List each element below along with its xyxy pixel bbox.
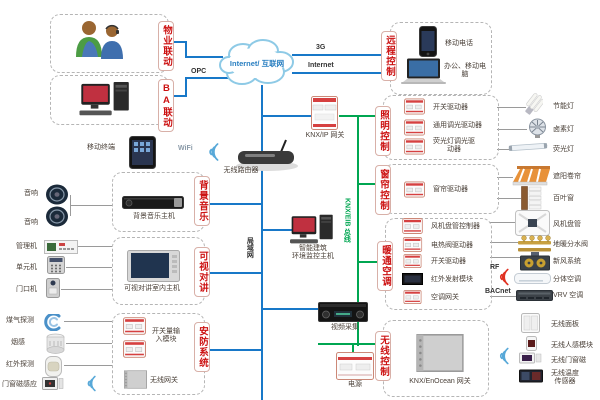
speaker-icon (45, 206, 69, 227)
wifi-waves-icon (204, 142, 220, 162)
door-station-icon (46, 278, 60, 298)
unit-station-label: 单元机 (16, 264, 37, 272)
smoke-detector-label: 烟感 (11, 339, 25, 347)
hvac-control-tag: 暖通空调 (377, 241, 393, 291)
music-host-icon (122, 194, 184, 211)
door-magnet-icon (42, 376, 64, 391)
opc-label: OPC (191, 68, 206, 76)
security-connector (64, 365, 112, 366)
gas-detector-icon (43, 314, 63, 331)
manifold-label: 地暖分水阀 (553, 241, 588, 249)
knx-ip-gateway-icon (311, 96, 338, 130)
knx-bus-label: KNX/EIB 总线 (342, 198, 350, 242)
property-staff-icon (72, 17, 128, 65)
ac-gateway-label: 空调网关 (431, 294, 459, 302)
security-connector (66, 343, 112, 344)
ba-link-line (185, 78, 187, 97)
security-connector (64, 321, 112, 322)
hvac-connector (490, 257, 521, 258)
video-capture-device-icon (318, 302, 368, 322)
management-station-icon (44, 240, 78, 254)
lan-branch-intercom (203, 272, 262, 274)
curtain-connector (497, 198, 521, 199)
awning-label: 遮阳卷帘 (553, 173, 581, 181)
monitor-host-computer-icon (290, 214, 336, 248)
split-ac-icon (514, 273, 551, 285)
pir-detector-label: 红外探测 (6, 361, 34, 369)
intercom-indoor-screen-icon (127, 250, 180, 282)
background-music-tag: 背景音乐 (194, 176, 210, 226)
wireless-gateway-label: 无线网关 (150, 377, 178, 385)
venetian-blinds-icon (521, 186, 542, 210)
lan-branch-knxip (263, 115, 312, 117)
music-host-label: 背景音乐主机 (125, 213, 183, 221)
door-station-label: 门口机 (16, 286, 37, 294)
switch-driver-label: 开关驱动器 (431, 258, 466, 266)
dimmer-driver-label: 通用调光驱动器 (433, 122, 482, 130)
valve-driver-label: 电热阀驱动器 (431, 242, 473, 250)
laptop-icon (400, 58, 447, 85)
fan-coil-controller-label: 风机盘管控制器 (431, 223, 480, 231)
intercom-connector (66, 267, 112, 268)
wireless-gateway-icon (124, 370, 147, 389)
unit-keypad-icon (47, 256, 65, 274)
cfl-lamp-icon (524, 93, 543, 117)
internet-label: Internet (308, 62, 334, 70)
monitor-host-label-line2: 环境监控主机 (288, 253, 338, 261)
din-module-icon (404, 119, 425, 136)
rf-label: RF (490, 264, 499, 272)
fan-coil-label: 风机盘管 (553, 221, 581, 229)
lighting-control-tag: 照明控制 (375, 106, 391, 156)
smartphone-icon (419, 26, 437, 57)
wireless-pir-label: 无线人感模块 (551, 342, 593, 350)
speaker-label: 音响 (24, 190, 38, 198)
pir-detector-icon (45, 356, 62, 377)
power-supply-icon (336, 352, 374, 380)
management-station-label: 管理机 (16, 243, 37, 251)
speaker-icon (45, 184, 69, 205)
din-module-icon (402, 237, 423, 252)
lamp-connector (497, 129, 527, 130)
heating-manifold-icon (516, 234, 553, 254)
speaker-connector (71, 205, 112, 206)
smoke-detector-icon (46, 333, 65, 355)
security-system-tag: 安防系统 (194, 322, 210, 372)
curtain-control-tag: 窗帘控制 (375, 165, 391, 215)
fresh-air-label: 新风系统 (553, 258, 581, 266)
office-laptop-label: 办公、移动电脑 (444, 63, 486, 80)
awning-icon (511, 165, 552, 186)
power-label: 电源 (343, 381, 367, 389)
fluorescent-tube-icon (508, 142, 548, 152)
din-module-icon (404, 98, 425, 115)
curtain-driver-label: 窗帘驱动器 (433, 186, 468, 194)
din-module-icon (404, 138, 425, 155)
fresh-air-unit-icon (520, 252, 550, 271)
speaker-label: 音响 (24, 219, 38, 227)
tablet-icon (129, 136, 156, 169)
split-ac-label: 分体空调 (553, 276, 581, 284)
vrv-ac-label: VRV 空调 (553, 292, 583, 300)
wireless-panel-icon (521, 313, 540, 333)
halogen-lamp-icon (527, 118, 548, 138)
wireless-door-magnet-label: 无线门窗磁 (551, 357, 586, 365)
ir-transmitter-icon (402, 273, 423, 285)
ir-transmitter-label: 红外发射模块 (431, 276, 473, 284)
door-magnet-label: 门窗磁感应 (2, 381, 37, 389)
ba-linkage-tag: BA联动 (158, 79, 174, 132)
knx-ip-gateway-label: KNX/IP 网关 (297, 132, 353, 140)
halogen-lamp-label: 卤素灯 (553, 126, 574, 134)
din-module-icon (402, 290, 423, 304)
lan-branch-music (203, 203, 262, 205)
knx-branch-wireless (318, 343, 377, 345)
din-module-icon (123, 316, 146, 336)
wireless-pir-icon (526, 336, 537, 351)
enocean-gateway-icon (416, 334, 464, 372)
lamp-connector (497, 107, 526, 108)
internet-link-line (292, 72, 384, 74)
cfl-lamp-label: 节能灯 (553, 103, 574, 111)
mobile-terminal-label: 移动终端 (87, 144, 115, 152)
wireless-control-tag: 无线控制 (375, 331, 391, 381)
mobile-phone-label: 移动电话 (445, 40, 473, 48)
video-intercom-tag: 可视对讲 (194, 247, 210, 297)
intercom-connector (61, 289, 112, 290)
hvac-connector (490, 222, 517, 223)
smart-building-system-diagram: Internet/ 互联网 (0, 0, 600, 400)
gas-detector-label: 煤气探测 (6, 317, 34, 325)
knx-branch-hvac (359, 261, 377, 263)
intercom-host-label: 可视对讲室内主机 (119, 285, 185, 293)
wireless-temp-sensor-label: 无线温度传感器 (549, 370, 581, 387)
fluorescent-driver-label: 荧光灯调光驱动器 (433, 138, 475, 155)
din-module-icon (402, 218, 423, 234)
wireless-door-magnet-icon (519, 351, 542, 365)
wireless-panel-label: 无线面板 (551, 321, 579, 329)
knx-branch-lighting (339, 115, 379, 117)
wireless-temp-sensor-icon (519, 369, 543, 383)
fluorescent-lamp-label: 荧光灯 (553, 146, 574, 154)
din-module-icon (402, 254, 423, 268)
lan-trunk-line (261, 85, 263, 400)
ba-computer-icon (78, 82, 134, 120)
3g-link-line (292, 54, 384, 56)
din-module-icon (404, 181, 425, 198)
fan-coil-cassette-icon (515, 210, 550, 236)
video-capture-label: 视频采集 (331, 324, 359, 332)
wifi-label: WiFi (178, 145, 193, 153)
property-linkage-tag: 物业联动 (158, 21, 174, 71)
router-label: 无线路由器 (217, 167, 265, 175)
internet-cloud-label: Internet/ 互联网 (224, 58, 290, 69)
wifi-waves-icon (83, 375, 97, 392)
vrv-ac-icon (516, 288, 553, 302)
switch-driver-label: 开关驱动器 (433, 104, 468, 112)
din-module-icon (123, 339, 146, 359)
lan-label: 局域网 (245, 237, 253, 258)
3g-label: 3G (316, 44, 325, 52)
hvac-connector (490, 242, 519, 243)
lan-branch-video (263, 308, 321, 310)
blinds-label: 百叶窗 (553, 195, 574, 203)
remote-control-tag: 远程控制 (381, 31, 397, 81)
enocean-gateway-label: KNX/EnOcean 网关 (404, 378, 476, 386)
bacnet-label: BACnet (485, 288, 511, 296)
lan-branch-security (203, 349, 262, 351)
switch-input-module-label: 开关量输入模块 (150, 328, 182, 345)
wifi-waves-icon (495, 347, 510, 365)
intercom-connector (78, 246, 112, 247)
